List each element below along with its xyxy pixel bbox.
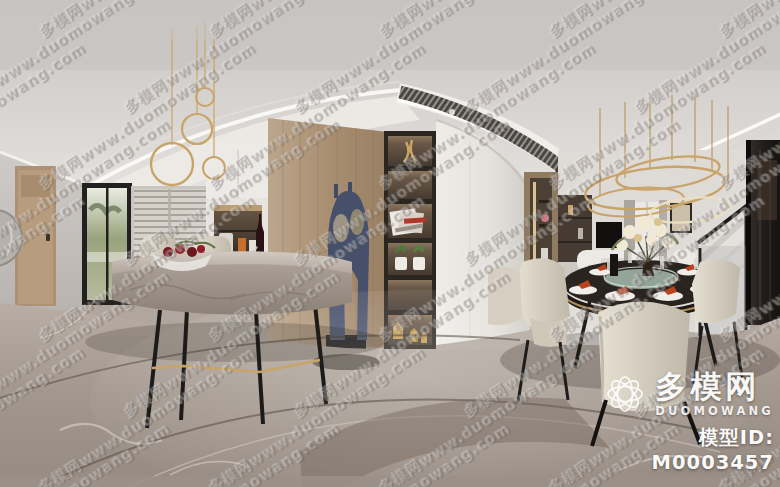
site-name-en: DUOMOWANG	[655, 406, 774, 418]
model-id-value: M0003457	[652, 451, 774, 474]
panorama-screenshot: 多模网www.duomowang.com多模网www.duomowang.com…	[0, 0, 780, 487]
dark-glass-cabinet	[746, 140, 780, 325]
model-id-line: 模型ID: M0003457	[579, 424, 774, 474]
site-name-cn: 多模网	[655, 371, 760, 402]
duomowang-rosette-icon	[602, 371, 648, 417]
model-id-label: 模型ID:	[699, 426, 774, 449]
pepper-mill	[610, 254, 618, 276]
zenith-blur	[0, 0, 780, 40]
site-watermark-logo: 多模网 DUOMOWANG 模型ID: M0003457	[579, 371, 774, 475]
